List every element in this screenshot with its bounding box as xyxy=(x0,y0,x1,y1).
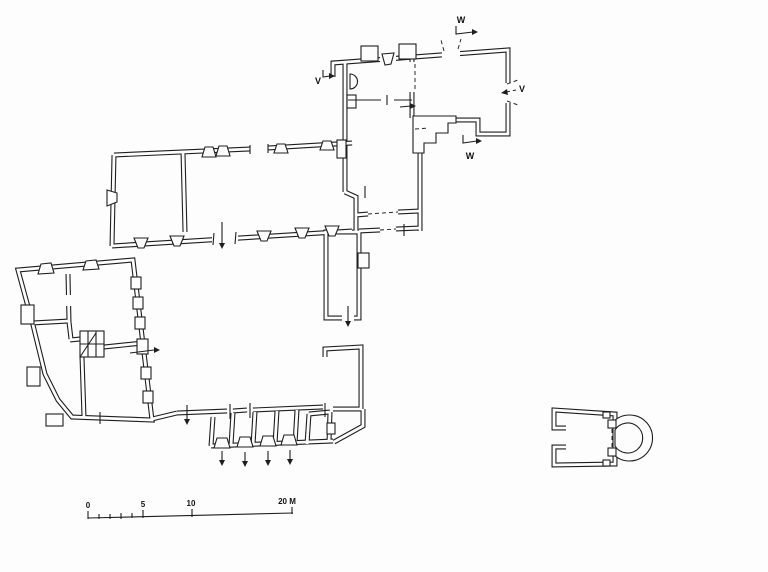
west-wing-walls xyxy=(112,143,352,246)
buttress xyxy=(135,317,145,329)
buttress xyxy=(361,46,378,61)
splayed-window xyxy=(260,436,276,446)
buttress xyxy=(399,44,416,59)
section-marker-v-left: V xyxy=(315,76,321,86)
plan-sheet: W V V W 0 5 10 20 M xyxy=(0,0,768,572)
splayed-window xyxy=(257,231,271,241)
north-block-details xyxy=(337,39,518,236)
splayed-window xyxy=(216,146,230,156)
scale-label-5: 5 xyxy=(141,500,146,509)
wall-niche xyxy=(358,253,369,268)
arrowhead-icon xyxy=(476,138,482,144)
sw-building-details xyxy=(21,260,160,426)
apse-jamb xyxy=(608,448,616,456)
stair-steps xyxy=(413,116,456,153)
splayed-window xyxy=(107,190,117,206)
wall-niche xyxy=(603,412,610,418)
door-porch xyxy=(46,414,63,426)
scale-label-10: 10 xyxy=(187,499,196,508)
door-porch xyxy=(27,367,40,386)
splayed-window xyxy=(274,144,288,153)
central-room-walls xyxy=(326,232,359,318)
details-layer: W V V W 0 5 10 20 M xyxy=(21,15,653,519)
splayed-window xyxy=(83,260,99,270)
floor-plan-drawing: W V V W 0 5 10 20 M xyxy=(0,0,768,572)
pilaster xyxy=(337,140,346,158)
buttress xyxy=(131,277,141,289)
section-marker-v-right: V xyxy=(519,84,525,94)
walls-layer xyxy=(18,50,615,465)
arrowhead-icon xyxy=(472,29,478,35)
splayed-window xyxy=(281,435,297,445)
buttress xyxy=(133,297,143,309)
scale-bar: 0 5 10 20 M xyxy=(86,497,296,519)
wall-niche xyxy=(603,460,610,466)
apse-jamb xyxy=(608,420,616,428)
splayed-window xyxy=(214,438,230,448)
apse-inner xyxy=(615,423,643,453)
wall-niche-apse xyxy=(350,74,358,89)
scale-label-20m: 20 M xyxy=(278,497,296,506)
wall-niche xyxy=(327,423,335,434)
chapel-details xyxy=(603,412,653,466)
west-wing-details xyxy=(107,141,339,249)
splayed-window xyxy=(237,437,253,447)
section-marker-w-bottom: W xyxy=(466,151,475,161)
door-porch xyxy=(21,305,34,324)
splayed-window xyxy=(38,263,54,274)
wall-niche xyxy=(347,95,356,108)
splayed-window xyxy=(202,147,216,157)
wall-inner-layer xyxy=(18,50,615,465)
scale-label-0: 0 xyxy=(86,501,91,510)
buttress xyxy=(141,367,151,379)
section-marker-w-top: W xyxy=(457,15,466,25)
splayed-window xyxy=(320,141,334,150)
buttress xyxy=(143,391,153,403)
